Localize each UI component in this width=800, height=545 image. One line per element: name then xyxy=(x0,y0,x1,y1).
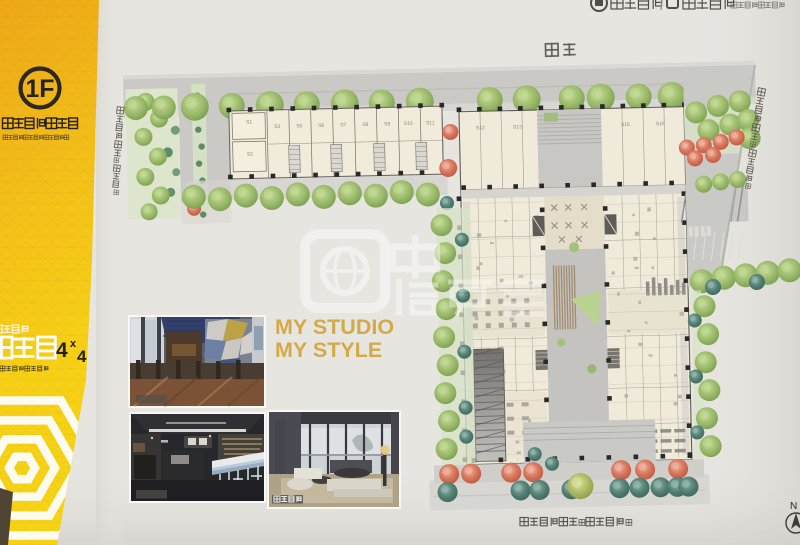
svg-text:N: N xyxy=(790,501,797,512)
